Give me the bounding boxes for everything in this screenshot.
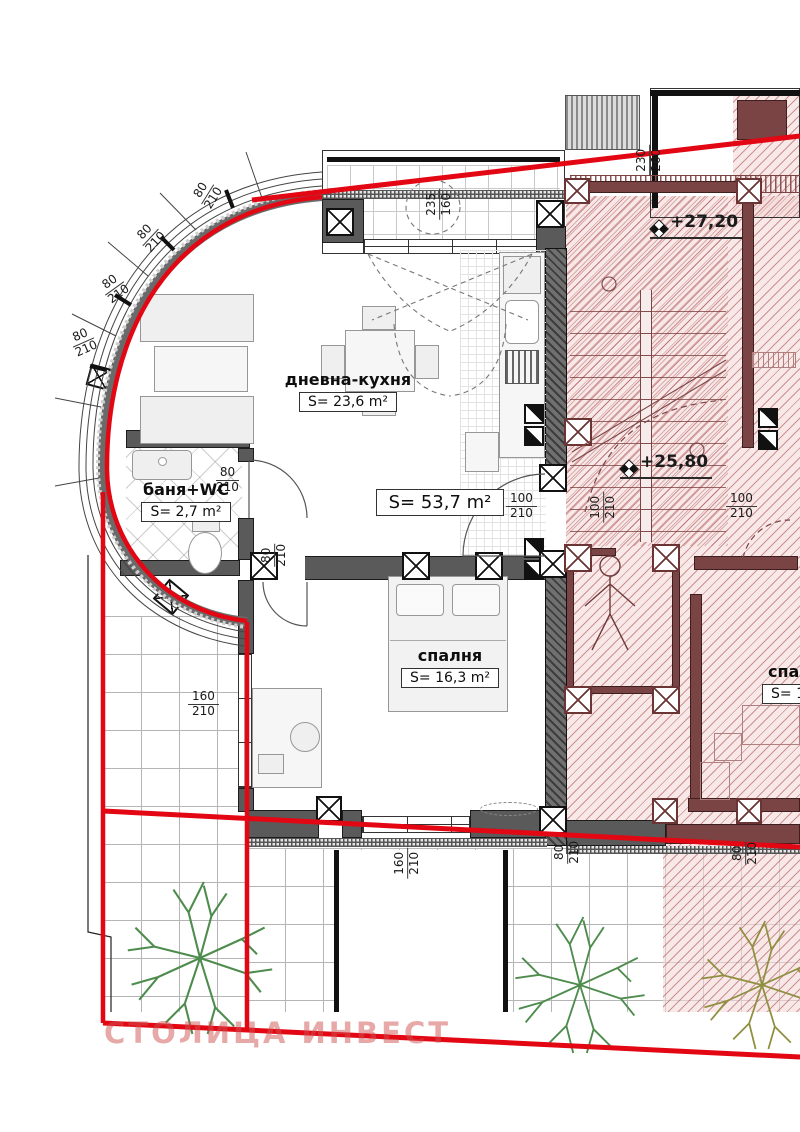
sofa-bottom [140,396,254,444]
shaft-icon [758,408,778,428]
pillar [539,806,567,834]
stair-stringer [640,290,652,542]
stair-top-wall [588,181,738,193]
terrace-left [103,616,247,1012]
pillar [536,200,564,228]
bath-right-wall [238,448,254,462]
kitchen-sink [505,300,539,344]
neighbor-room-area: S= 1 [762,684,800,704]
sofa-top [140,294,254,342]
living-room-label: дневна-кухня S= 23,6 m² [268,370,428,412]
shaft-icon [524,404,544,424]
terrace-gap-edge-left [334,850,339,1012]
dim-label: 100210 [589,492,618,523]
building-bottom-insulation [566,846,800,854]
neighbor-room-label: спа S= 1 [762,662,800,704]
neighbor-balcony-parapet-top [650,90,800,96]
level-lower: +25,80 [640,452,708,472]
dim-label: 80210 [64,323,104,362]
dim-label: 80210 [94,268,136,309]
company-watermark: СТОЛИЦА ИНВЕСТ [104,1016,451,1050]
neighbor-balcony-outline [650,88,800,218]
dim-label: 160210 [393,848,422,879]
coffee-table [154,346,248,392]
bedroom-label: спалня S= 16,3 m² [395,646,505,688]
bath-label: баня+WC S= 2,7 m² [130,480,242,522]
level-upper-line [650,237,742,239]
desk-chair [290,722,320,752]
living-room-name: дневна-кухня [268,370,428,389]
dim-label: 100210 [726,492,757,521]
neighbor-radiator [752,352,796,368]
bedroom-window [238,654,252,788]
apartment-total-area: S= 53,7 m² [376,489,505,516]
pillar [652,686,680,714]
pillar [736,798,762,824]
pillar [539,550,567,578]
bed-pillow-right [452,584,500,616]
bed-pillow-left [396,584,444,616]
pillar [475,552,503,580]
pillar [316,796,342,822]
pillar [652,544,680,572]
toilet-bowl [188,532,222,574]
living-room-area: S= 23,6 m² [299,392,397,412]
dim-label: 80210 [129,216,171,258]
pillar [564,544,592,572]
dim-label: 80210 [553,837,582,868]
pillar [736,178,762,204]
neighbor-room-name: спа [762,662,800,681]
kitchen-stove [505,350,539,384]
pillar [564,418,592,446]
neighbor-chair [714,733,742,761]
bedroom-left-wall-lower [238,788,254,812]
bath-area: S= 2,7 m² [141,502,230,522]
dim-label: 80210 [731,838,760,869]
level-upper: +27,20 [670,212,738,232]
level-lower-line [620,477,712,479]
dim-label: 80210 [260,540,289,571]
pillar [564,178,590,204]
dim-label: 160210 [188,690,219,719]
stair-side-wall [742,196,754,448]
pillar [153,579,190,616]
balcony-parapet [327,157,560,162]
bedroom-bottom-wall-mid [342,810,362,838]
apartment-total-label: S= 53,7 m² [375,486,505,516]
bedroom-name: спалня [395,646,505,665]
desk-printer [258,754,284,774]
pillar [326,208,354,236]
terrace-table [480,802,538,816]
bedroom-bottom-insulation [247,838,547,847]
bedroom-area: S= 16,3 m² [401,668,499,688]
hatch-terrace-right [663,848,800,1012]
bedroom-bottom-wall-left [247,810,319,838]
dim-label: 100210 [506,492,537,521]
terrace-gap-edge-right [503,850,508,1012]
bath-bottom-wall [120,560,240,576]
kitchen-counter-lower [465,432,499,472]
bedroom-bottom-window [362,816,470,833]
neighbor-desk [742,705,800,745]
dim-label: 80210 [187,174,228,215]
bath-name: баня+WC [130,480,242,499]
pillar [539,464,567,492]
neighbor-wall-h [694,556,798,570]
neighbor-cabinet [700,762,730,800]
pillar [402,552,430,580]
shaft-icon [758,430,778,450]
shaft-icon [524,426,544,446]
pillar [652,798,678,824]
floor-plan: 80210 80210 80210 80210 235160 230260 80… [0,0,800,1132]
dining-chair-north [362,306,396,330]
kitchen-fridge [503,256,541,294]
bed-blanket-line [390,640,506,641]
wall-section-top [565,95,640,150]
dim-label: 230260 [635,145,664,176]
dim-label: 235160 [425,189,454,220]
bath-faucet [158,457,167,466]
pillar [86,364,113,391]
pillar [564,686,592,714]
bedroom-left-wall-upper [238,580,254,654]
